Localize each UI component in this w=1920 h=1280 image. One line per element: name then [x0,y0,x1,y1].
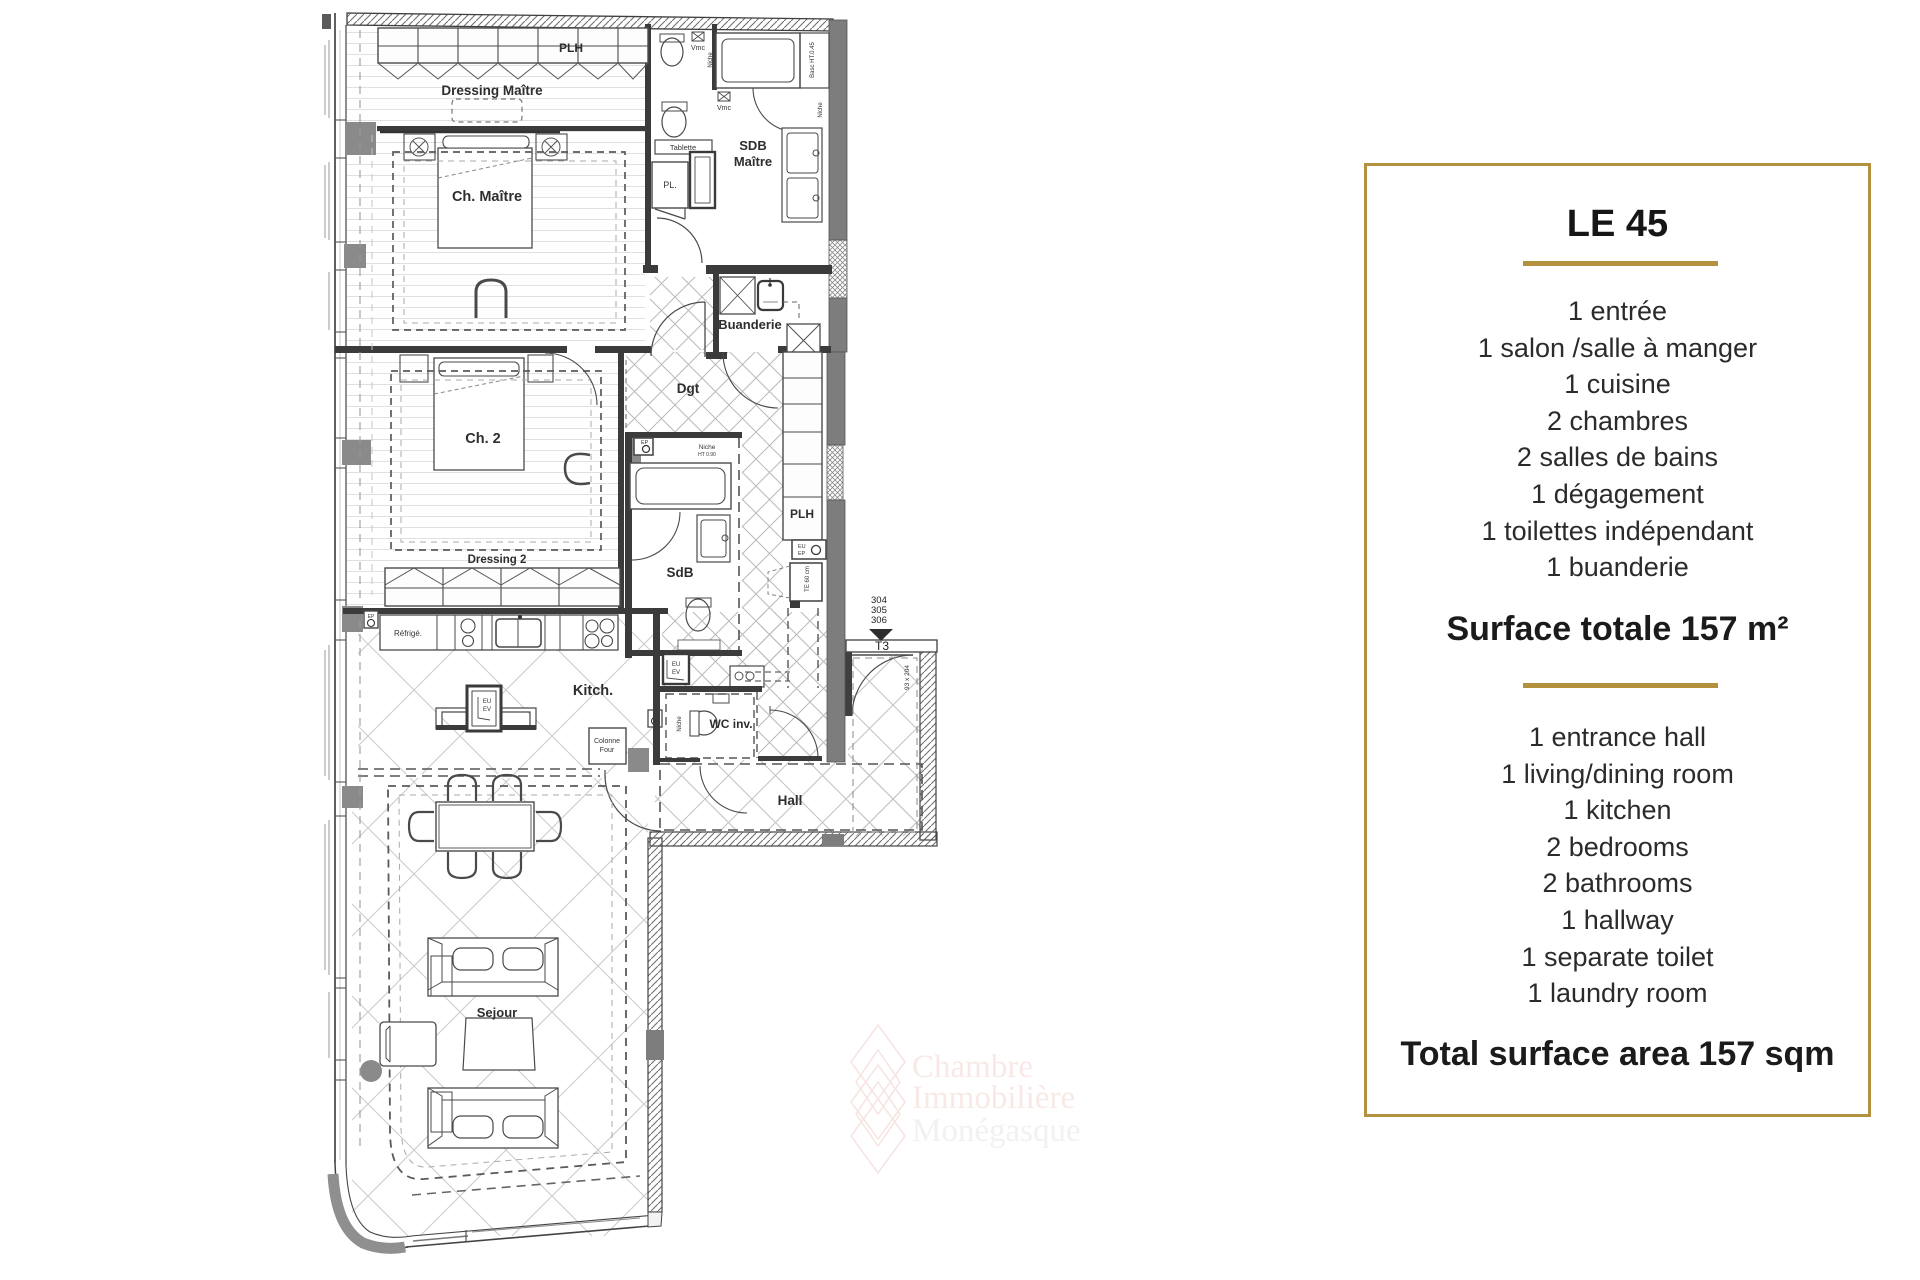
svg-text:Four: Four [600,747,615,754]
svg-text:Monégasque: Monégasque [912,1113,1081,1149]
svg-text:EU: EU [483,699,491,705]
svg-text:EU: EU [672,662,680,668]
svg-text:Tablette: Tablette [670,143,696,152]
svg-text:PLH: PLH [790,507,814,521]
svg-text:Niche: Niche [677,716,683,732]
svg-text:EV: EV [483,707,491,713]
svg-text:Ch. 2: Ch. 2 [465,431,500,447]
svg-text:Kitch.: Kitch. [573,683,613,699]
svg-text:EP: EP [368,614,375,620]
svg-text:Dressing 2: Dressing 2 [468,554,527,566]
svg-text:Dgt: Dgt [677,381,700,396]
svg-text:Réfrigé.: Réfrigé. [394,629,422,638]
svg-text:Sejour: Sejour [477,1005,517,1020]
svg-text:SDB: SDB [739,138,766,153]
svg-text:Niche: Niche [818,102,824,118]
svg-text:HT 0.90: HT 0.90 [698,452,716,458]
svg-text:Niche: Niche [699,444,716,451]
svg-text:93 x 204: 93 x 204 [904,665,911,690]
svg-text:Dressing Maître: Dressing Maître [441,83,543,98]
svg-text:Vmc: Vmc [717,105,732,112]
svg-text:EP: EP [641,440,649,446]
svg-text:Ch. Maître: Ch. Maître [452,189,522,205]
svg-text:Niche: Niche [708,52,714,68]
svg-text:Basc HT.0.45: Basc HT.0.45 [810,41,816,77]
svg-text:TE 60 cm: TE 60 cm [805,566,811,592]
svg-text:Buanderie: Buanderie [718,317,782,332]
svg-text:PLH: PLH [559,41,583,55]
svg-text:T3: T3 [875,639,889,653]
svg-text:PL.: PL. [663,180,677,190]
svg-text:Colonne: Colonne [594,738,620,745]
svg-text:Immobilière: Immobilière [912,1080,1075,1116]
svg-text:Hall: Hall [778,793,803,808]
svg-text:EU: EU [798,544,806,550]
svg-text:306: 306 [871,615,887,626]
svg-text:WC inv.: WC inv. [709,717,752,731]
svg-text:EP: EP [798,551,806,557]
svg-text:SdB: SdB [667,565,694,580]
svg-text:Vmc: Vmc [691,45,706,52]
svg-text:EV: EV [672,670,680,676]
svg-text:Maître: Maître [734,154,772,169]
